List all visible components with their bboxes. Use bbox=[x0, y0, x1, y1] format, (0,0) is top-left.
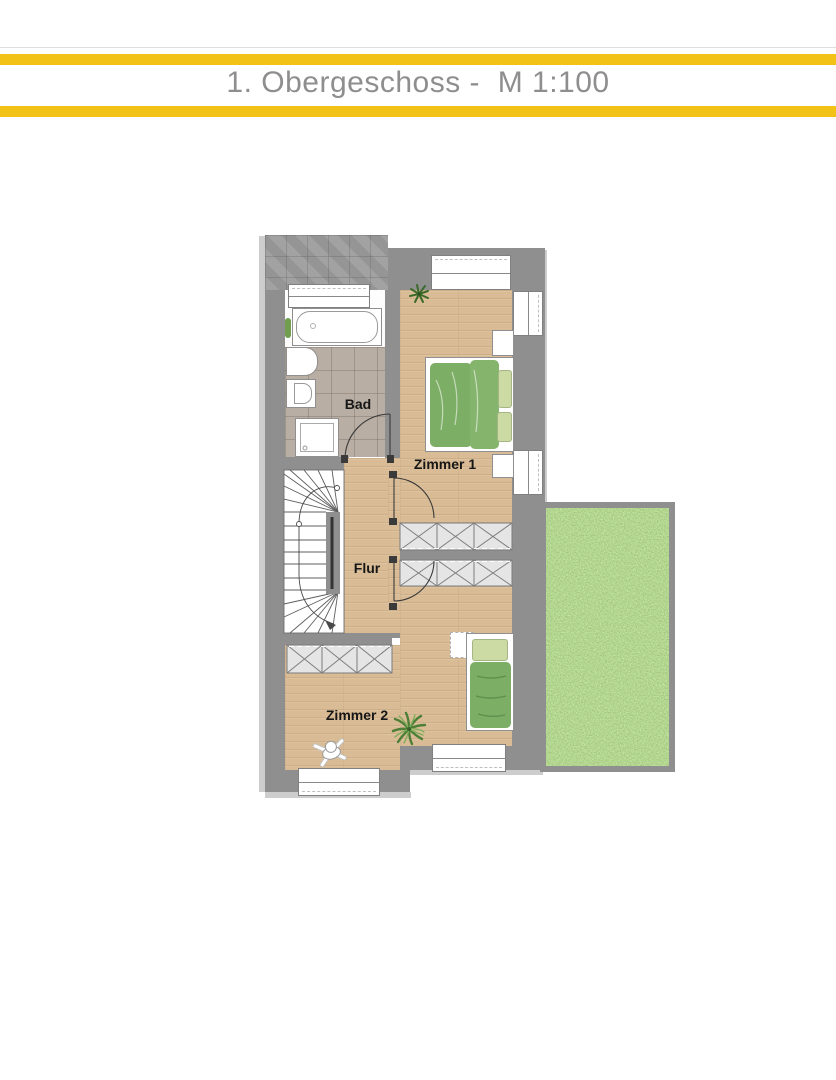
stair-direction-arrow bbox=[325, 620, 336, 630]
window bbox=[513, 291, 543, 336]
nightstand bbox=[492, 454, 514, 478]
window bbox=[432, 744, 506, 772]
roof-area bbox=[265, 235, 388, 290]
plan-linework bbox=[0, 0, 836, 1080]
wall-segment bbox=[394, 550, 514, 560]
bathtub bbox=[292, 308, 382, 346]
duvet bbox=[470, 662, 511, 728]
wall-segment bbox=[265, 290, 285, 792]
header-bar-bottom bbox=[0, 106, 836, 117]
single-bed bbox=[466, 633, 514, 731]
wall-segment bbox=[385, 290, 400, 458]
lawn bbox=[540, 502, 675, 772]
shower bbox=[295, 418, 339, 457]
room-label-flur: Flur bbox=[354, 560, 380, 576]
wardrobe-zimmer2-upper bbox=[400, 560, 512, 586]
header-divider bbox=[0, 47, 836, 48]
stair-spine-wall bbox=[326, 512, 340, 594]
window bbox=[431, 255, 511, 290]
towel-icon bbox=[285, 318, 291, 338]
wardrobe-zimmer1 bbox=[400, 523, 512, 550]
double-bed bbox=[425, 357, 514, 452]
nightstand bbox=[492, 330, 514, 356]
floor-plan-page: 1. Obergeschoss - M 1:100 bbox=[0, 0, 836, 1080]
page-title: 1. Obergeschoss - M 1:100 bbox=[0, 66, 836, 100]
duvet bbox=[470, 360, 499, 449]
window bbox=[298, 768, 380, 796]
duvet bbox=[430, 363, 472, 447]
staircase bbox=[284, 470, 344, 633]
lawn-texture bbox=[546, 508, 669, 766]
room-label-bad: Bad bbox=[345, 396, 371, 412]
room-label-zimmer1: Zimmer 1 bbox=[414, 456, 476, 472]
door-threshold bbox=[388, 561, 400, 603]
window bbox=[288, 284, 370, 308]
toilet bbox=[286, 379, 316, 408]
wall-segment bbox=[285, 633, 392, 645]
pillow bbox=[472, 639, 508, 661]
window bbox=[513, 450, 543, 495]
wall-segment bbox=[285, 457, 349, 470]
header-bar-top bbox=[0, 54, 836, 65]
door-threshold bbox=[388, 478, 400, 518]
pillow bbox=[497, 412, 512, 442]
pillow bbox=[498, 370, 512, 408]
washbasin bbox=[286, 347, 318, 376]
room-label-zimmer2: Zimmer 2 bbox=[326, 707, 388, 723]
stair-handrail bbox=[331, 517, 334, 589]
